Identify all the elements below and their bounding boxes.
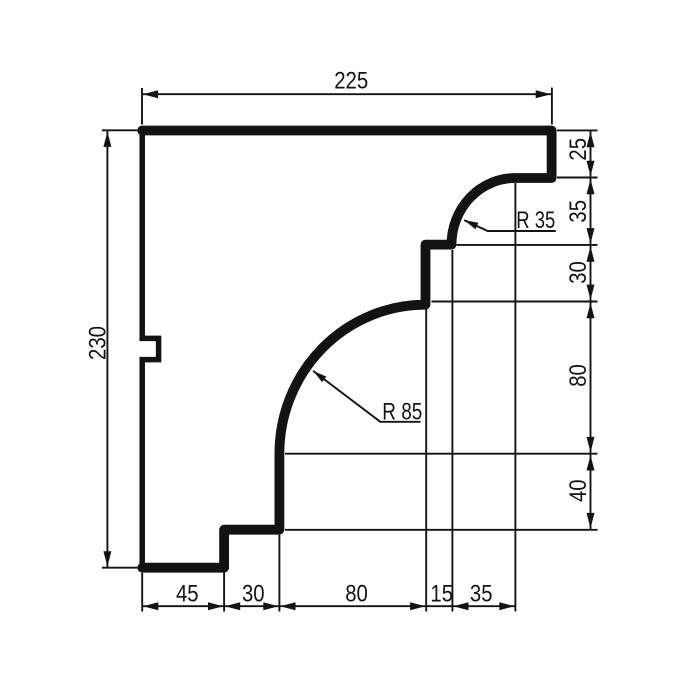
svg-text:25: 25 (565, 138, 592, 161)
svg-text:80: 80 (565, 364, 592, 387)
svg-text:R 85: R 85 (382, 399, 422, 426)
svg-text:80: 80 (345, 581, 368, 608)
svg-text:R 35: R 35 (516, 207, 555, 234)
svg-text:30: 30 (565, 261, 592, 284)
svg-text:30: 30 (242, 581, 265, 608)
svg-text:230: 230 (84, 326, 111, 360)
svg-text:35: 35 (565, 200, 592, 223)
svg-text:35: 35 (470, 581, 493, 608)
svg-text:225: 225 (334, 68, 368, 95)
svg-text:15: 15 (430, 581, 453, 608)
svg-text:40: 40 (565, 479, 592, 502)
svg-text:45: 45 (176, 581, 199, 608)
